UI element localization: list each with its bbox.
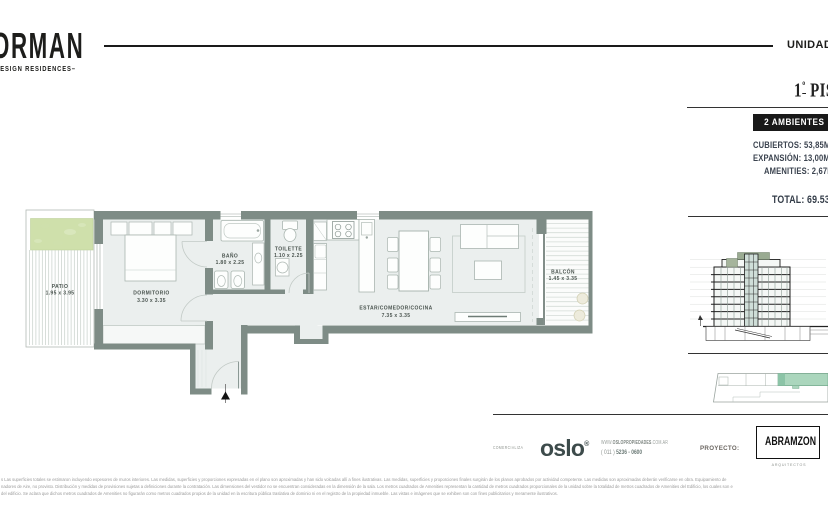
svg-text:3.30 x 3.35: 3.30 x 3.35 xyxy=(137,298,166,304)
svg-text:1.80 x 2.25: 1.80 x 2.25 xyxy=(216,260,245,266)
svg-text:ESTAR/COMEDOR/COCINA: ESTAR/COMEDOR/COCINA xyxy=(359,306,432,312)
svg-text:TOILETTE: TOILETTE xyxy=(275,247,303,253)
svg-text:PATIO: PATIO xyxy=(52,284,69,290)
svg-text:1.10 x 2.25: 1.10 x 2.25 xyxy=(274,253,303,259)
svg-text:1.95 x 3.95: 1.95 x 3.95 xyxy=(46,291,75,297)
svg-text:DORMITORIO: DORMITORIO xyxy=(133,291,169,297)
svg-text:7.35 x 3.35: 7.35 x 3.35 xyxy=(382,313,411,319)
svg-text:BALCÓN: BALCÓN xyxy=(551,268,575,276)
svg-text:BAÑO: BAÑO xyxy=(222,253,238,260)
svg-text:1.45 x 3.35: 1.45 x 3.35 xyxy=(549,276,578,282)
